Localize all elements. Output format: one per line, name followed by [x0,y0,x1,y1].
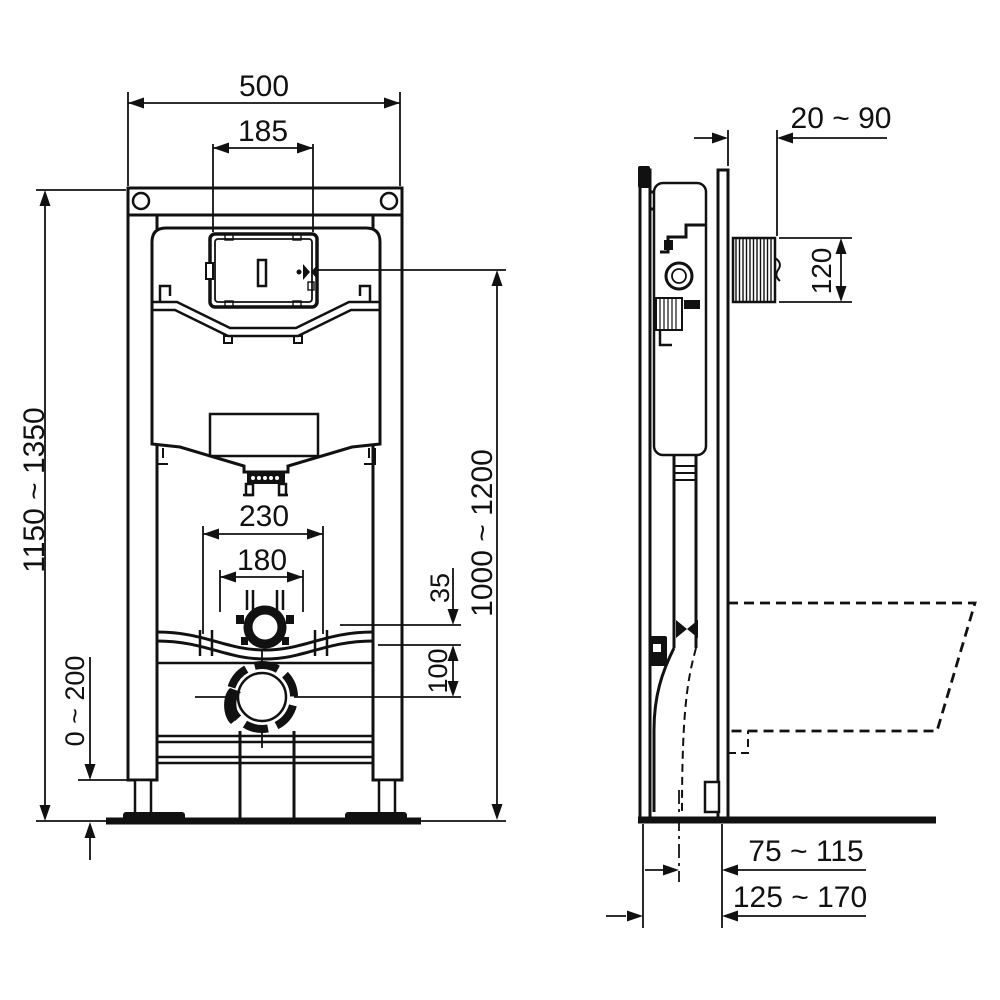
dim-label-outlet-to-wall: 75 ~ 115 [748,835,863,868]
technical-drawing: 500 185 230 180 [0,0,1000,1000]
dim-label-outlet-depth: 125 ~ 170 [733,881,867,914]
dim-label-flush-pipe-spacing: 180 [237,544,287,577]
dim-label-bowl-fixing-spacing: 230 [239,500,289,533]
adjustable-foot-left [135,780,151,814]
push-slot [258,260,266,286]
adjustable-foot-right [379,780,395,814]
side-clip-left [206,263,213,279]
dim-label-foot-adjustment: 0 ~ 200 [60,656,90,747]
frame-front-plate [718,170,728,820]
corner-bolt-hole-left [133,193,149,209]
seal-block [656,298,682,330]
dim-outlet-offset: 100 [423,645,459,697]
corner-bolt-hole-right [381,193,397,209]
dim-label-service-opening-width: 185 [238,115,288,148]
frame-back-rail [640,170,650,820]
flush-opening-block [733,238,780,302]
dim-label-service-opening-height: 120 [806,248,837,295]
inlet-valve [666,263,692,289]
dim-label-wall-finish-depth: 20 ~ 90 [791,102,892,135]
dim-label-frame-width: 500 [239,70,289,103]
dim-label-flush-pipe-offset: 35 [425,573,455,603]
inspection-box [206,234,318,307]
dim-label-outlet-offset: 100 [423,648,453,693]
dim-label-actuation-height: 1000 ~ 1200 [466,449,499,617]
dim-label-frame-height: 1150 ~ 1350 [18,407,51,572]
